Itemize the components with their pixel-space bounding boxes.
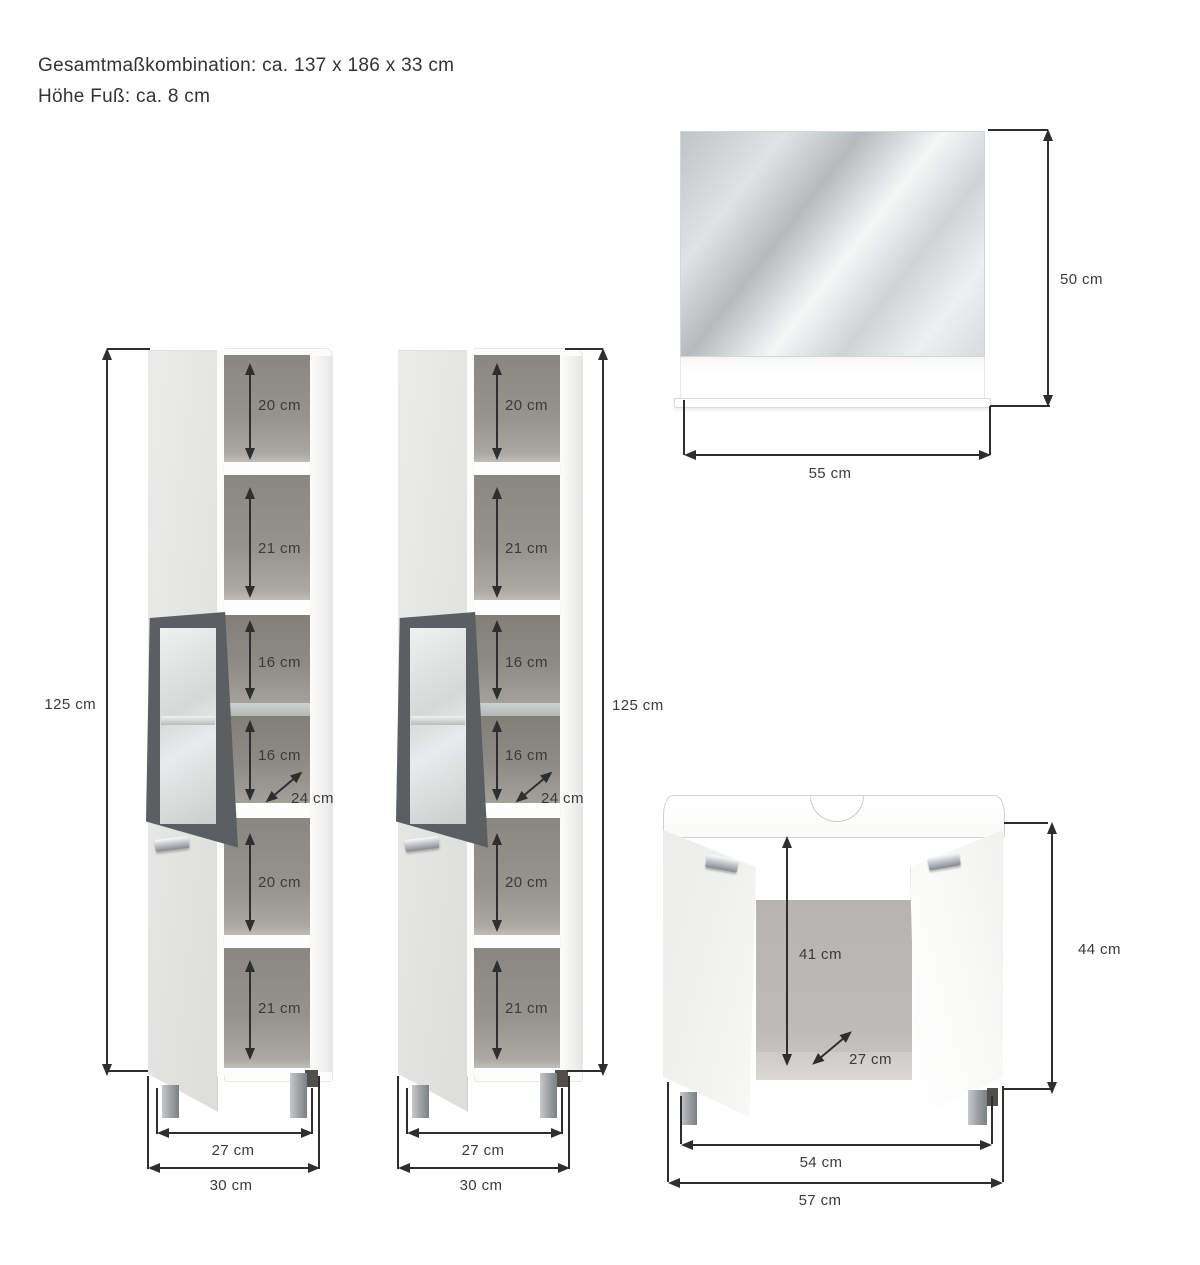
- dim-tick: [1004, 1088, 1052, 1090]
- right-door: [910, 830, 1003, 1117]
- open-compartment-2: [474, 475, 560, 600]
- glass-door: [396, 612, 488, 850]
- height-dim-label: 44 cm: [1078, 941, 1121, 959]
- compartment-dim-label: 21 cm: [258, 1000, 301, 1018]
- width-dim-arrow: [684, 450, 991, 460]
- dim-tick: [565, 348, 603, 350]
- height-dim-label: 125 cm: [612, 697, 664, 715]
- dim-tick: [147, 1076, 149, 1169]
- compartment-dim-arrow: [245, 960, 255, 1060]
- height-dim-arrow: [1047, 822, 1057, 1094]
- width-dim-label: 55 cm: [790, 465, 870, 483]
- shelf-board: [224, 935, 310, 948]
- outer-width-dim-arrow: [148, 1163, 320, 1173]
- compartment-dim-label: 16 cm: [505, 654, 548, 672]
- glass-door: [146, 612, 238, 850]
- shelf-board: [474, 600, 560, 615]
- inner-height-dim-label: 41 cm: [799, 946, 842, 964]
- dim-tick: [1002, 1086, 1004, 1182]
- dim-tick: [568, 1076, 570, 1169]
- cabinet-leg: [540, 1073, 557, 1118]
- inner-width-dim-label: 27 cm: [193, 1142, 273, 1160]
- compartment-dim-label: 20 cm: [505, 397, 548, 415]
- mirror-shelf-ledge: [674, 398, 991, 408]
- cabinet-leg: [162, 1085, 179, 1118]
- glass-shelf-board: [224, 703, 310, 716]
- dim-tick: [991, 1096, 993, 1144]
- dim-tick: [1004, 822, 1048, 824]
- outer-width-dim-label: 30 cm: [191, 1177, 271, 1195]
- compartment-dim-label: 20 cm: [258, 874, 301, 892]
- compartment-dim-arrow: [492, 960, 502, 1060]
- dim-tick: [683, 400, 685, 455]
- compartment-dim-label: 21 cm: [505, 540, 548, 558]
- inner-width-dim-arrow: [407, 1128, 563, 1138]
- shelf-board: [224, 600, 310, 615]
- compartment-dim-label: 20 cm: [258, 397, 301, 415]
- dim-tick: [680, 1096, 682, 1144]
- dim-tick: [107, 1070, 148, 1072]
- mirror-glass: [680, 131, 985, 357]
- height-dim-arrow: [102, 348, 112, 1076]
- compartment-dim-label: 21 cm: [258, 540, 301, 558]
- compartment-dim-arrow: [245, 620, 255, 700]
- compartment-dim-arrow: [492, 833, 502, 932]
- inner-width-dim-arrow: [681, 1140, 992, 1150]
- shelf-board: [224, 462, 310, 475]
- outer-width-dim-arrow: [668, 1178, 1003, 1188]
- dim-tick: [107, 348, 150, 350]
- outer-width-dim-label: 30 cm: [441, 1177, 521, 1195]
- compartment-dim-label: 21 cm: [505, 1000, 548, 1018]
- depth-dim-label: 27 cm: [849, 1051, 892, 1069]
- foot-height-text: Höhe Fuß: ca. 8 cm: [38, 86, 210, 108]
- dim-tick: [397, 1076, 399, 1169]
- shelf-board: [474, 935, 560, 948]
- cabinet-leg: [680, 1092, 697, 1125]
- glass-pane: [160, 628, 216, 824]
- compartment-dim-arrow: [492, 363, 502, 460]
- compartment-dim-label: 16 cm: [258, 747, 301, 765]
- glass-shelf-board: [474, 703, 560, 716]
- overall-dimensions-text: Gesamtmaßkombination: ca. 137 x 186 x 33…: [38, 55, 454, 77]
- inner-height-dim-arrow: [782, 836, 792, 1066]
- cabinet-side-panel: [560, 356, 582, 1072]
- dim-tick: [990, 405, 1050, 407]
- furniture-dimension-diagram: Gesamtmaßkombination: ca. 137 x 186 x 33…: [0, 0, 1200, 1265]
- dim-tick: [988, 129, 1048, 131]
- depth-dim-label: 24 cm: [541, 790, 584, 808]
- height-dim-arrow: [1043, 129, 1053, 407]
- mirror-panel: [680, 357, 985, 399]
- height-dim-arrow: [598, 348, 608, 1076]
- outer-width-dim-label: 57 cm: [780, 1192, 860, 1210]
- compartment-dim-arrow: [245, 363, 255, 460]
- inner-width-dim-label: 54 cm: [781, 1154, 861, 1172]
- dim-tick: [667, 1082, 669, 1182]
- compartment-dim-arrow: [245, 833, 255, 932]
- compartment-dim-label: 16 cm: [258, 654, 301, 672]
- outer-width-dim-arrow: [398, 1163, 570, 1173]
- dim-tick: [567, 1070, 603, 1072]
- compartment-dim-arrow: [492, 487, 502, 598]
- inner-width-dim-arrow: [157, 1128, 313, 1138]
- cabinet-leg: [968, 1090, 987, 1125]
- depth-dim-label: 24 cm: [291, 790, 334, 808]
- compartment-dim-arrow: [492, 620, 502, 700]
- glass-pane: [410, 628, 466, 824]
- height-dim-label: 50 cm: [1060, 271, 1103, 289]
- cabinet-side-panel: [310, 356, 332, 1072]
- left-door: [663, 830, 756, 1117]
- dim-tick: [318, 1076, 320, 1169]
- inner-width-dim-label: 27 cm: [443, 1142, 523, 1160]
- height-dim-label: 125 cm: [30, 696, 96, 714]
- shelf-board: [474, 462, 560, 475]
- compartment-dim-arrow: [492, 720, 502, 801]
- compartment-dim-label: 16 cm: [505, 747, 548, 765]
- dim-tick: [989, 406, 991, 455]
- open-compartment-2: [224, 475, 310, 600]
- cabinet-leg: [412, 1085, 429, 1118]
- compartment-dim-label: 20 cm: [505, 874, 548, 892]
- compartment-dim-arrow: [245, 720, 255, 801]
- compartment-dim-arrow: [245, 487, 255, 598]
- cabinet-leg: [290, 1073, 307, 1118]
